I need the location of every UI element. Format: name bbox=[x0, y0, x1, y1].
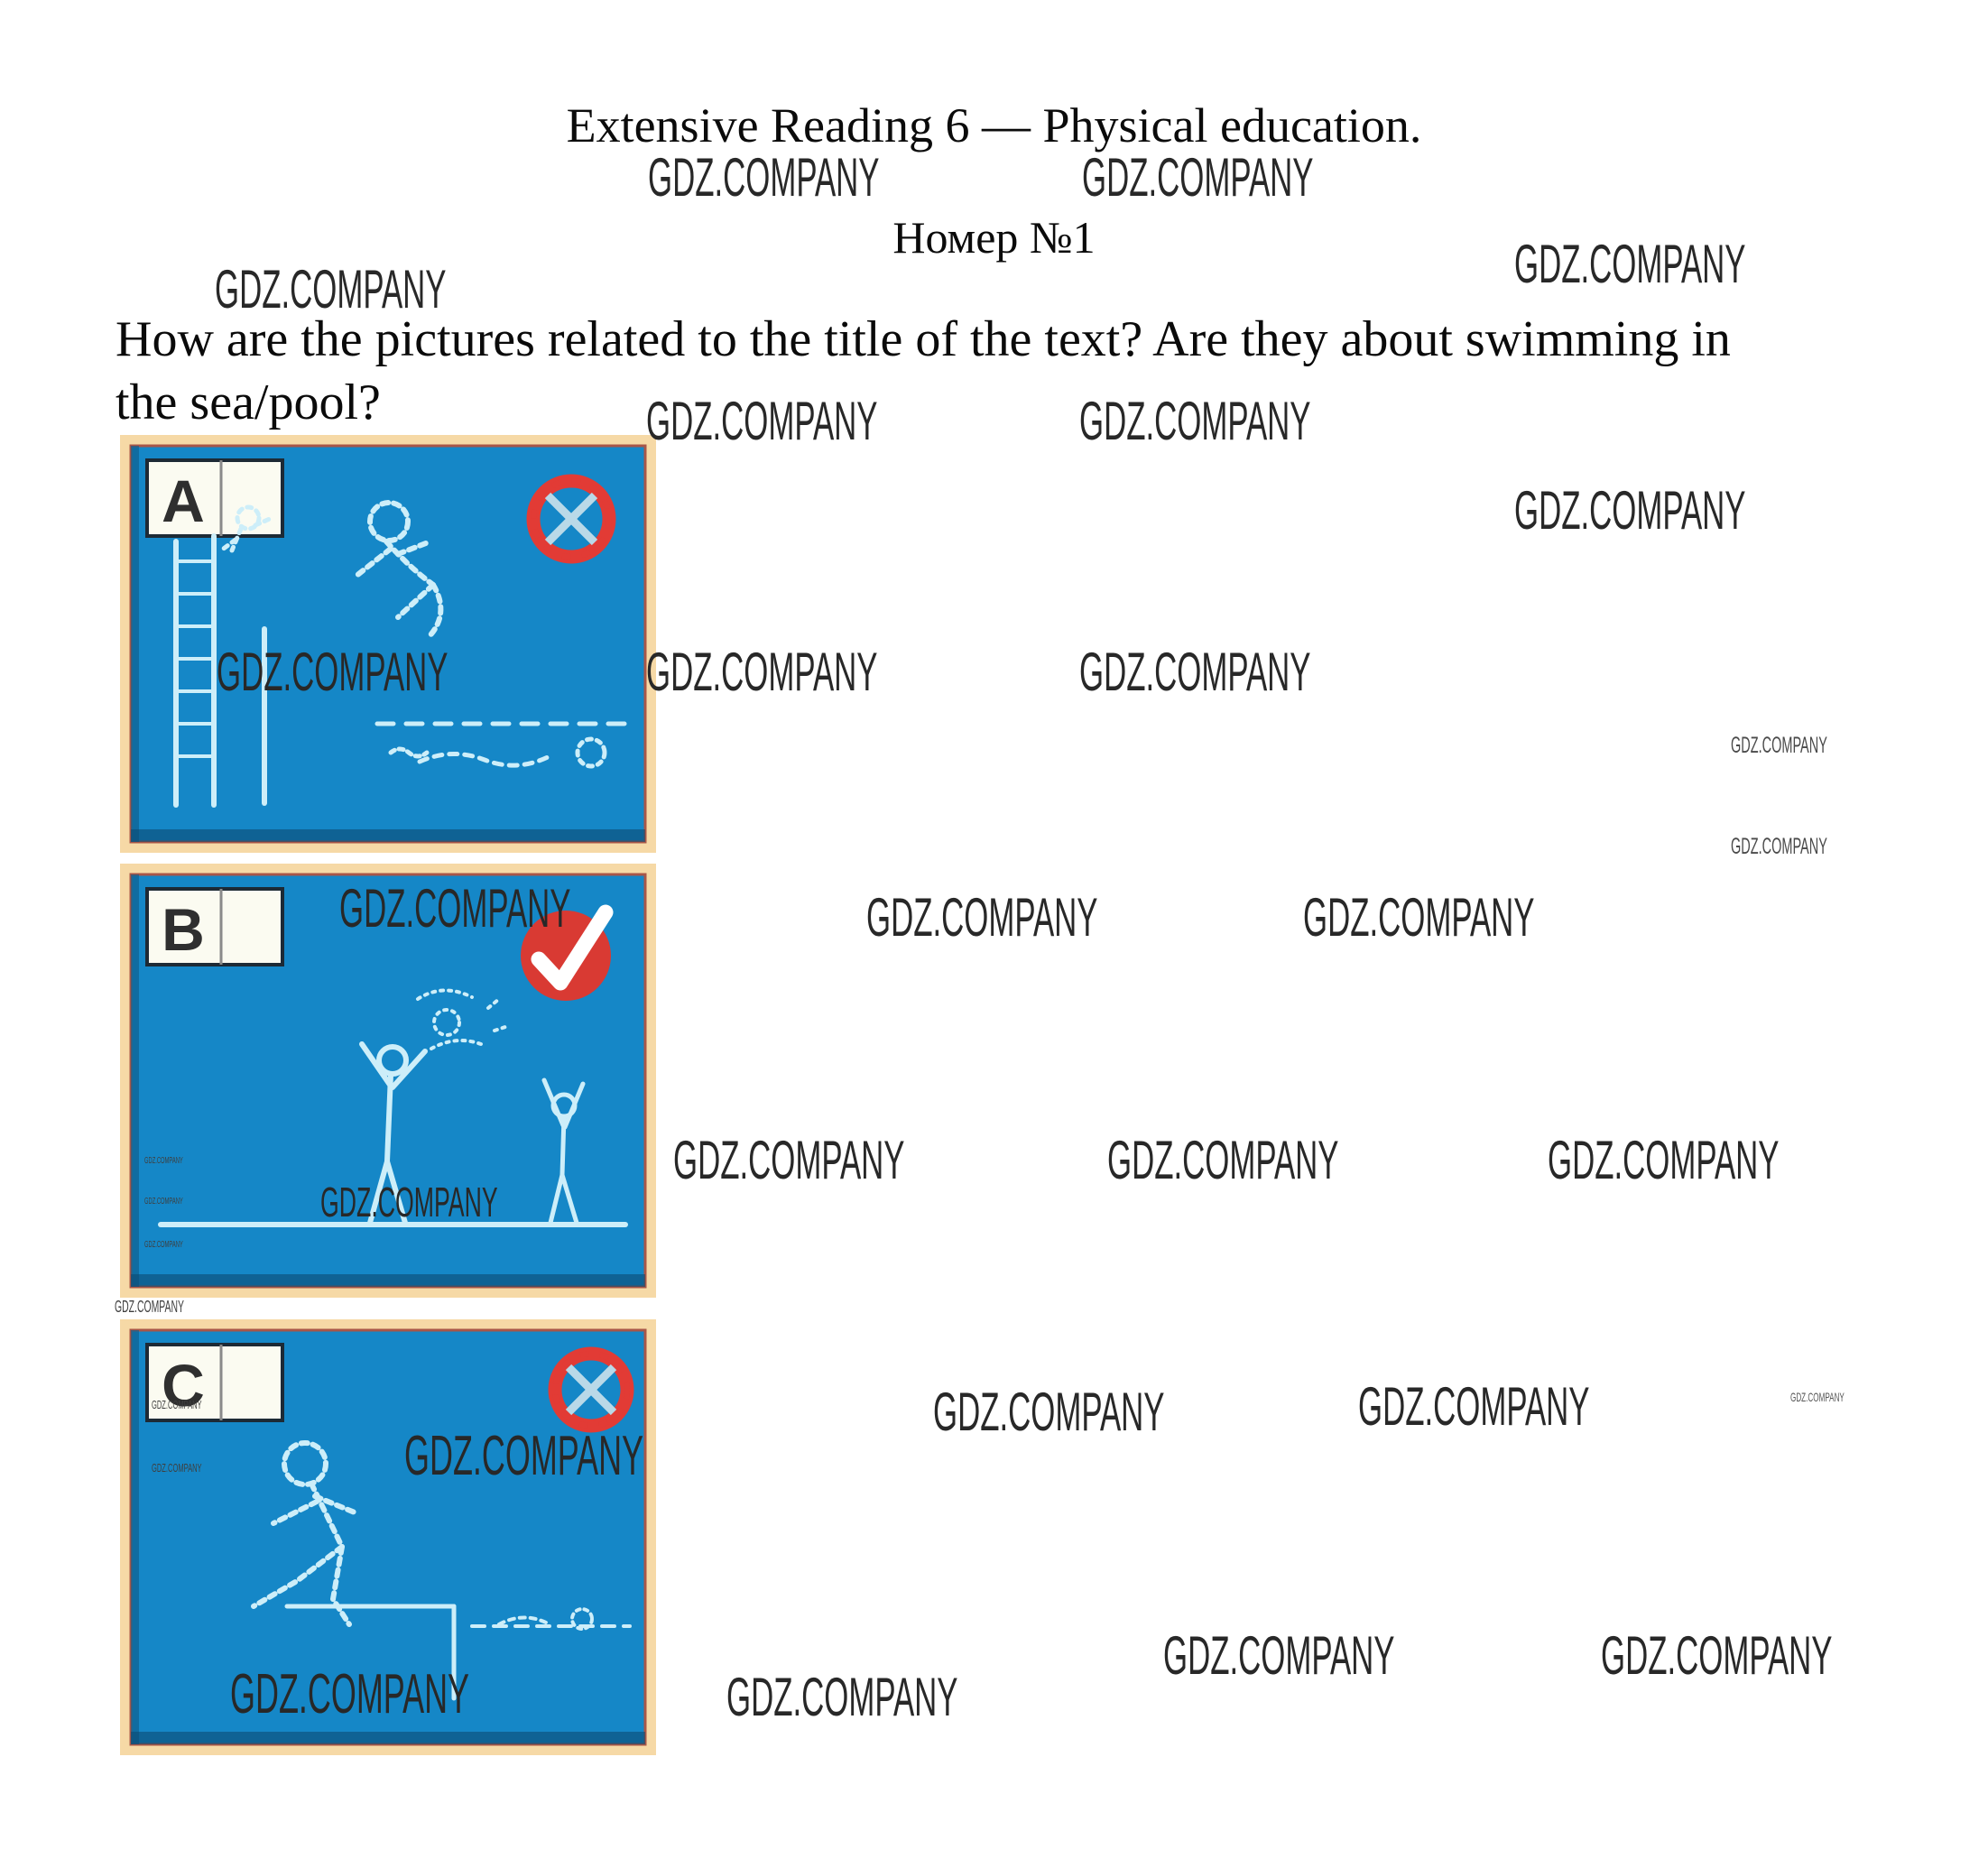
watermark: GDZ.COMPANY bbox=[1514, 484, 1746, 538]
check-mark-icon bbox=[521, 911, 611, 1001]
watermark: GDZ.COMPANY bbox=[646, 394, 878, 449]
document-page: { "page": { "title": "Extensive Reading … bbox=[0, 0, 1988, 1868]
question-line-1: How are the pictures related to the titl… bbox=[116, 310, 1731, 368]
panel-letter-a: A bbox=[162, 467, 205, 534]
watermark: GDZ.COMPANY bbox=[1731, 836, 1827, 858]
watermark: GDZ.COMPANY bbox=[1082, 151, 1314, 205]
watermark: GDZ.COMPANY bbox=[1548, 1133, 1780, 1188]
panel-a-bottom-shade bbox=[131, 829, 645, 842]
panel-c-left-shade bbox=[131, 1330, 139, 1744]
watermark: GDZ.COMPANY bbox=[1358, 1380, 1590, 1434]
watermark: GDZ.COMPANY bbox=[115, 1299, 184, 1315]
panel-c-graphic: C bbox=[120, 1319, 656, 1755]
page-title: Extensive Reading 6 — Physical education… bbox=[0, 97, 1988, 153]
watermark: GDZ.COMPANY bbox=[1079, 394, 1311, 449]
panel-b-graphic: B bbox=[120, 864, 656, 1298]
label-box-c: C bbox=[147, 1345, 282, 1420]
watermark: GDZ.COMPANY bbox=[673, 1133, 905, 1188]
sign-picture-a: A bbox=[120, 435, 656, 853]
watermark: GDZ.COMPANY bbox=[215, 263, 447, 317]
panel-b-left-shade bbox=[131, 874, 139, 1287]
watermark: GDZ.COMPANY bbox=[1079, 645, 1311, 699]
watermark: GDZ.COMPANY bbox=[648, 151, 880, 205]
question-line-2: the sea/pool? bbox=[116, 374, 381, 431]
exercise-number: Номер №1 bbox=[0, 211, 1988, 264]
panel-c-bottom-shade bbox=[131, 1732, 645, 1744]
panel-letter-b: B bbox=[162, 896, 205, 963]
watermark: GDZ.COMPANY bbox=[726, 1670, 958, 1725]
panel-letter-c: C bbox=[162, 1352, 205, 1419]
panel-b-bottom-shade bbox=[131, 1274, 645, 1287]
label-box-a: A bbox=[147, 460, 282, 536]
watermark: GDZ.COMPANY bbox=[1790, 1391, 1845, 1403]
panel-a-left-shade bbox=[131, 446, 139, 842]
label-box-b: B bbox=[147, 889, 282, 965]
watermark: GDZ.COMPANY bbox=[1107, 1133, 1339, 1188]
sign-picture-b: B bbox=[120, 864, 656, 1298]
watermark: GDZ.COMPANY bbox=[1303, 891, 1535, 945]
panel-a-graphic: A bbox=[120, 435, 656, 853]
watermark: GDZ.COMPANY bbox=[1163, 1629, 1395, 1683]
watermark: GDZ.COMPANY bbox=[1731, 735, 1827, 757]
watermark: GDZ.COMPANY bbox=[933, 1385, 1165, 1439]
watermark: GDZ.COMPANY bbox=[866, 891, 1098, 945]
sign-picture-c: C bbox=[120, 1319, 656, 1755]
watermark: GDZ.COMPANY bbox=[646, 645, 878, 699]
watermark: GDZ.COMPANY bbox=[1601, 1629, 1833, 1683]
